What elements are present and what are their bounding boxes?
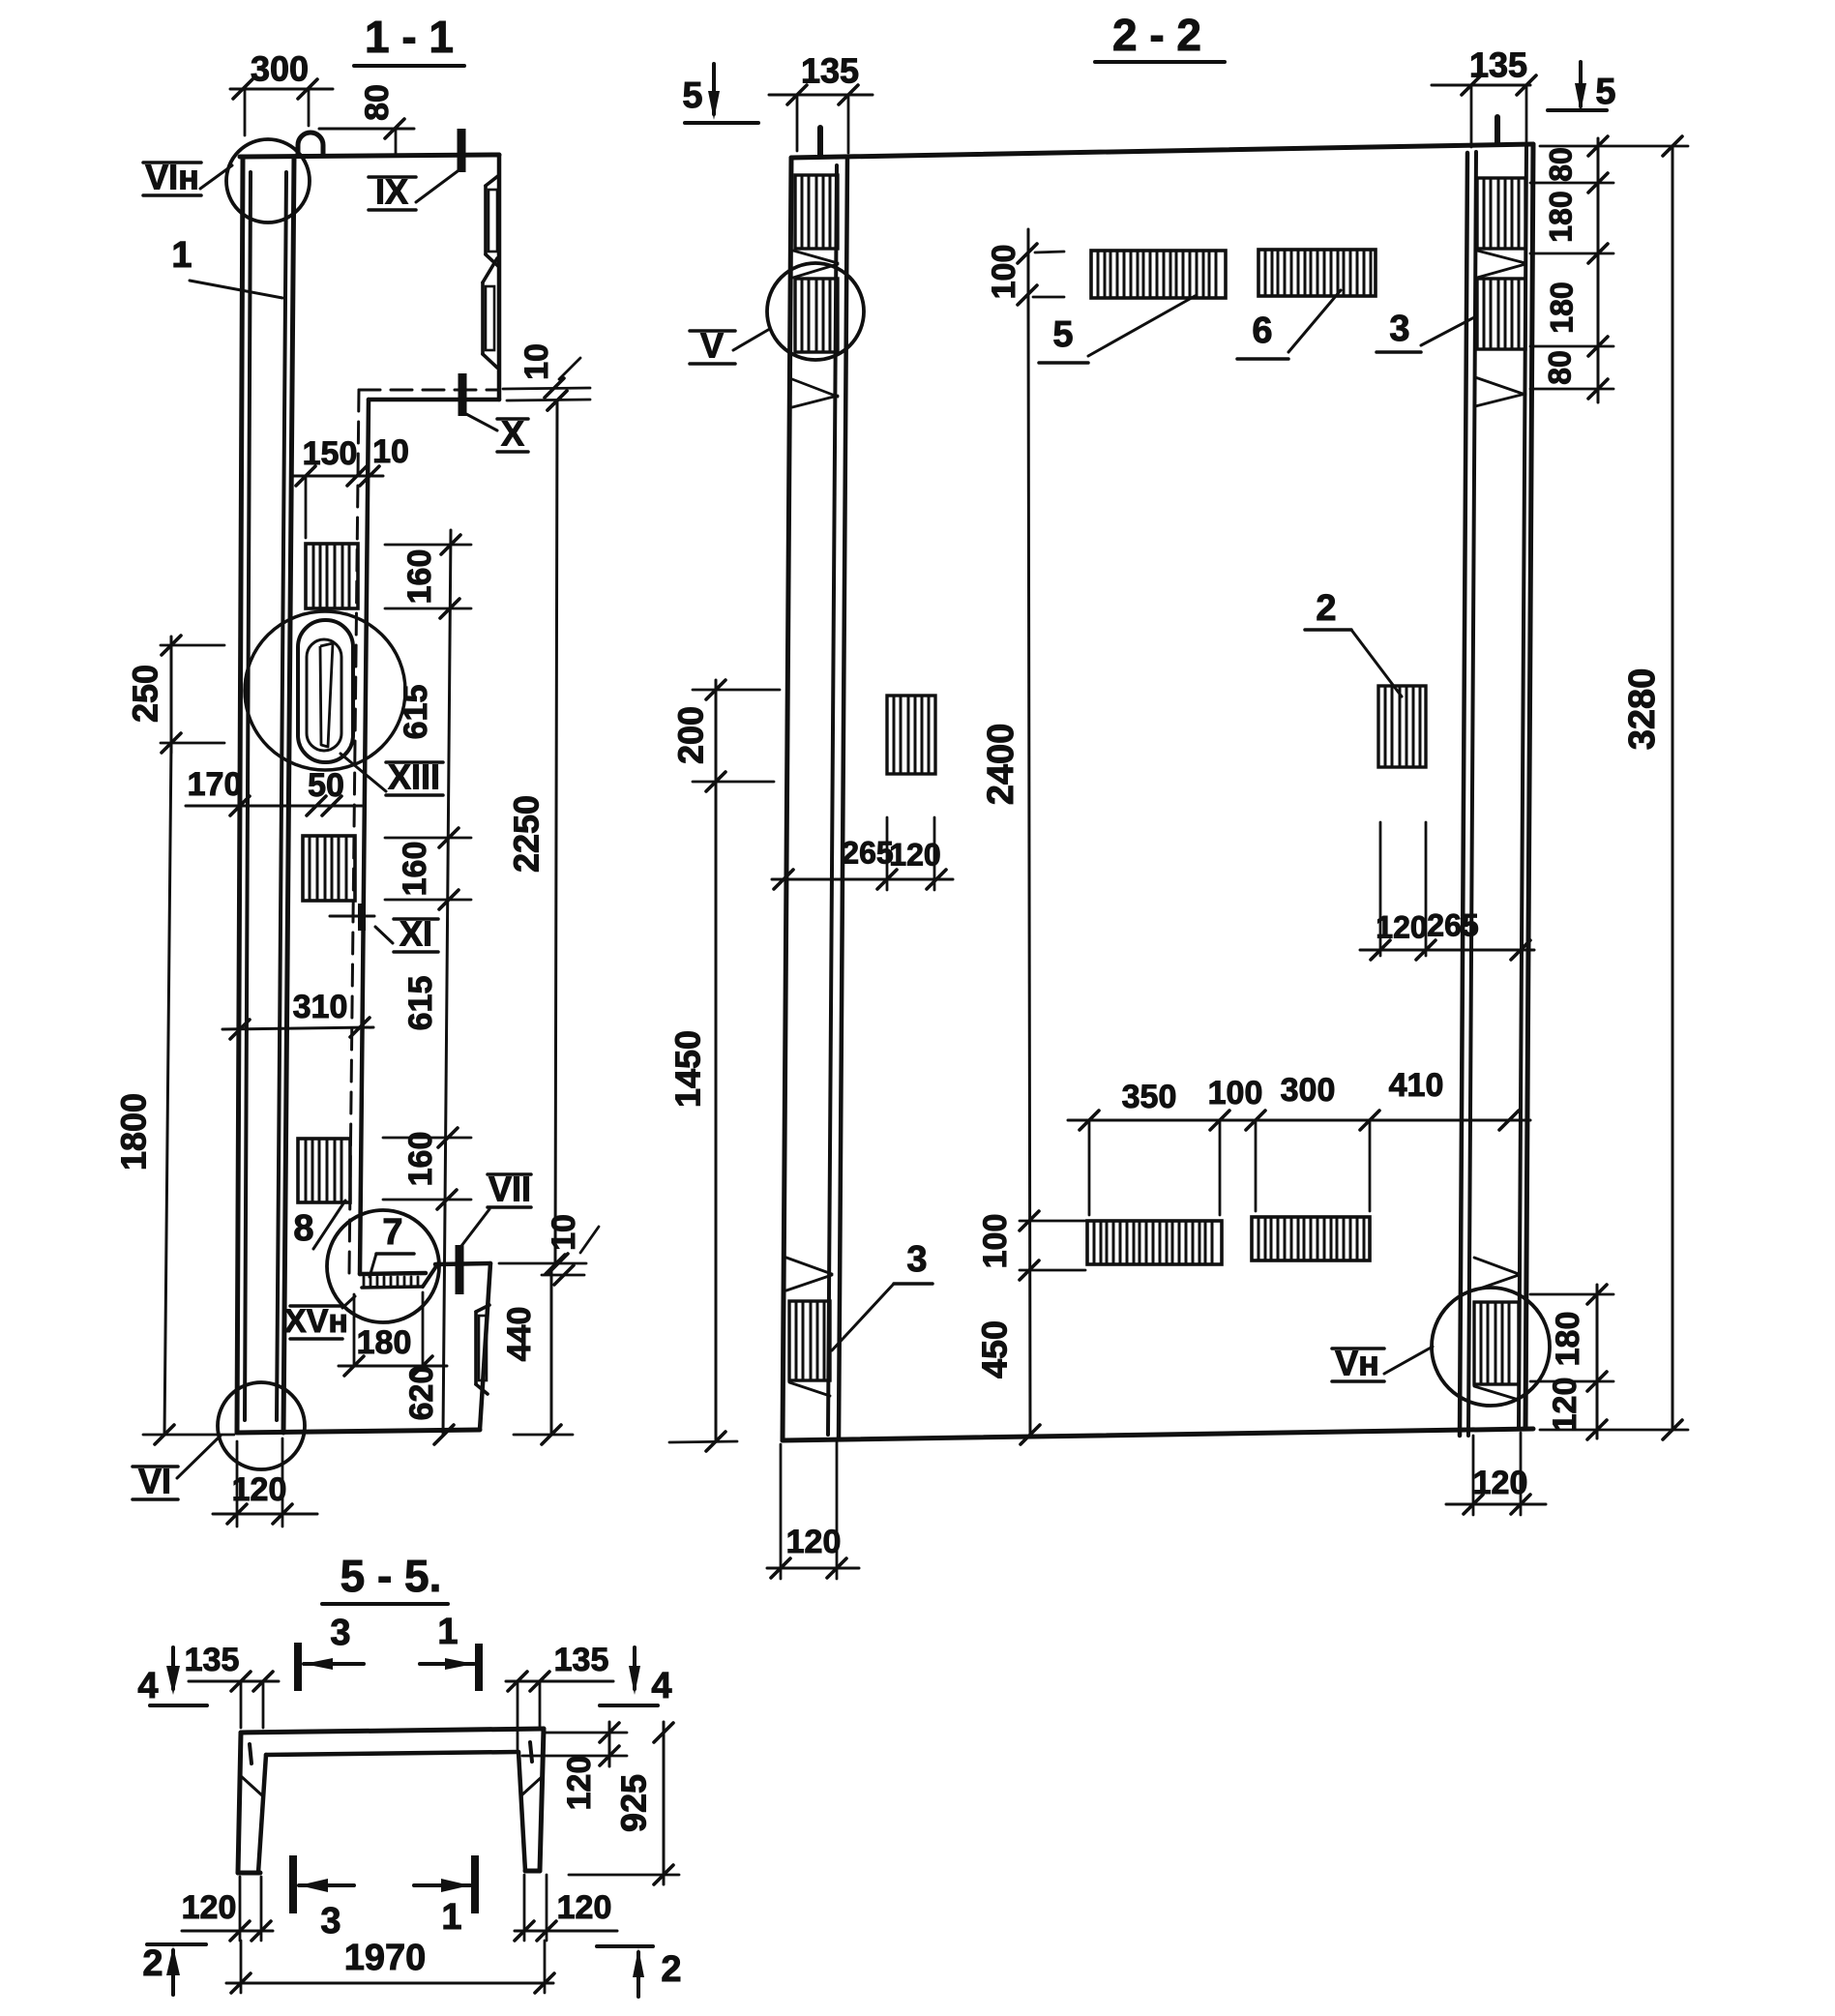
svg-text:150: 150 — [303, 435, 358, 472]
svg-text:135: 135 — [801, 51, 859, 91]
svg-text:10: 10 — [518, 343, 555, 380]
svg-text:2250: 2250 — [507, 795, 547, 873]
svg-text:100: 100 — [977, 1214, 1014, 1269]
svg-text:180: 180 — [1544, 282, 1579, 333]
svg-text:1: 1 — [441, 1897, 461, 1938]
svg-text:120: 120 — [1473, 1465, 1528, 1501]
svg-text:350: 350 — [1122, 1079, 1177, 1115]
svg-text:XVн: XVн — [284, 1303, 348, 1340]
svg-text:50: 50 — [308, 767, 344, 804]
svg-text:410: 410 — [1389, 1067, 1444, 1104]
svg-text:925: 925 — [614, 1774, 654, 1832]
svg-text:10: 10 — [546, 1214, 582, 1251]
svg-text:3: 3 — [906, 1239, 927, 1280]
svg-text:310: 310 — [293, 989, 348, 1025]
svg-text:5: 5 — [1595, 72, 1615, 112]
svg-text:10: 10 — [372, 433, 409, 470]
svg-text:180: 180 — [357, 1324, 412, 1361]
svg-text:2 - 2: 2 - 2 — [1112, 10, 1201, 60]
svg-text:300: 300 — [1281, 1072, 1336, 1109]
svg-text:3: 3 — [1389, 309, 1409, 349]
svg-text:135: 135 — [185, 1642, 240, 1678]
svg-text:120: 120 — [1547, 1378, 1583, 1433]
svg-text:160: 160 — [397, 842, 433, 897]
svg-text:7: 7 — [382, 1212, 402, 1253]
svg-text:160: 160 — [401, 549, 438, 605]
svg-text:180: 180 — [1543, 191, 1578, 242]
svg-text:120: 120 — [786, 1524, 842, 1560]
svg-text:200: 200 — [671, 706, 711, 764]
svg-text:6: 6 — [1252, 311, 1272, 351]
svg-text:2: 2 — [142, 1943, 163, 1984]
svg-text:135: 135 — [1469, 45, 1527, 85]
svg-text:120: 120 — [889, 837, 940, 872]
svg-text:1 - 1: 1 - 1 — [365, 12, 454, 62]
svg-text:265: 265 — [842, 835, 893, 870]
svg-text:160: 160 — [402, 1132, 439, 1187]
svg-text:615: 615 — [398, 685, 434, 740]
svg-text:100: 100 — [1208, 1075, 1263, 1112]
svg-text:1: 1 — [437, 1612, 458, 1652]
svg-text:8: 8 — [293, 1208, 313, 1249]
svg-text:80: 80 — [1543, 147, 1578, 182]
svg-text:250: 250 — [126, 665, 165, 723]
svg-text:265: 265 — [1427, 907, 1478, 942]
svg-text:1: 1 — [171, 235, 192, 276]
svg-text:300: 300 — [251, 49, 309, 89]
svg-text:5: 5 — [682, 75, 702, 116]
svg-text:120: 120 — [182, 1889, 237, 1926]
svg-text:80: 80 — [1542, 350, 1577, 385]
svg-text:615: 615 — [402, 976, 439, 1031]
svg-text:135: 135 — [554, 1642, 609, 1678]
svg-text:170: 170 — [188, 766, 243, 803]
svg-text:440: 440 — [501, 1307, 538, 1362]
svg-text:450: 450 — [975, 1320, 1015, 1379]
svg-text:120: 120 — [561, 1756, 598, 1811]
svg-text:5 - 5.: 5 - 5. — [340, 1551, 442, 1601]
svg-text:1450: 1450 — [668, 1030, 708, 1108]
svg-text:180: 180 — [1550, 1312, 1586, 1367]
svg-text:120: 120 — [557, 1889, 612, 1926]
svg-text:3: 3 — [320, 1901, 340, 1942]
svg-text:2: 2 — [1316, 588, 1336, 629]
svg-text:2: 2 — [661, 1949, 681, 1990]
svg-text:1970: 1970 — [344, 1938, 427, 1978]
svg-text:620: 620 — [403, 1366, 440, 1421]
svg-text:100: 100 — [986, 245, 1022, 300]
svg-text:5: 5 — [1052, 314, 1073, 355]
svg-text:4: 4 — [137, 1666, 158, 1706]
svg-text:120: 120 — [1376, 909, 1427, 944]
svg-text:2400: 2400 — [981, 724, 1021, 806]
svg-text:80: 80 — [359, 84, 396, 121]
svg-text:4: 4 — [651, 1666, 671, 1706]
svg-text:120: 120 — [232, 1471, 287, 1508]
svg-text:3280: 3280 — [1622, 668, 1663, 751]
svg-text:1800: 1800 — [114, 1093, 154, 1171]
svg-text:3: 3 — [330, 1613, 350, 1653]
